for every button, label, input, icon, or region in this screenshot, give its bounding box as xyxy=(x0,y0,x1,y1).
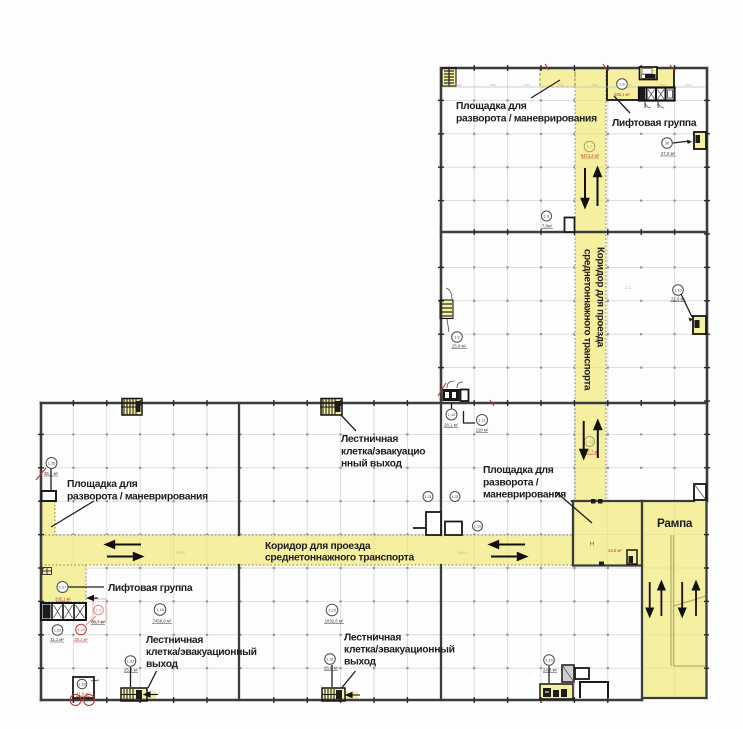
svg-text:1.15: 1.15 xyxy=(545,658,553,663)
svg-text:разворота / маневрирования: разворота / маневрирования xyxy=(67,491,208,502)
svg-text:1.10: 1.10 xyxy=(674,288,682,293)
svg-text:24,6 м²: 24,6 м² xyxy=(608,548,622,553)
svg-text:клетка/эвакуационный: клетка/эвакуационный xyxy=(344,645,455,656)
svg-text:25,8 м²: 25,8 м² xyxy=(124,668,139,673)
svg-text:41,5 м²: 41,5 м² xyxy=(76,692,90,697)
svg-text:1.9: 1.9 xyxy=(454,335,459,340)
svg-text:7456,6 м²: 7456,6 м² xyxy=(153,619,172,624)
svg-text:24,8 м²: 24,8 м² xyxy=(543,668,558,673)
svg-text:1.31: 1.31 xyxy=(451,494,459,499)
svg-text:1.7: 1.7 xyxy=(587,144,592,149)
svg-text:ДВ№1: ДВ№1 xyxy=(458,551,467,555)
svg-text:клетка/эвакуационный: клетка/эвакуационный xyxy=(146,647,257,658)
svg-text:нный выход: нный выход xyxy=(341,459,402,470)
svg-text:выход: выход xyxy=(146,659,179,670)
svg-text:1.26: 1.26 xyxy=(48,461,56,466)
svg-text:1.23: 1.23 xyxy=(328,608,336,613)
svg-text:Лифтовая группа: Лифтовая группа xyxy=(108,582,193,594)
svg-text:1.19: 1.19 xyxy=(474,524,482,529)
svg-text:3.1: 3.1 xyxy=(625,285,632,290)
svg-text:разворота /: разворота / xyxy=(483,477,539,488)
svg-text:118 м²: 118 м² xyxy=(476,428,489,433)
svg-text:клетка/эвакуацио: клетка/эвакуацио xyxy=(341,446,425,457)
svg-text:Площадка для: Площадка для xyxy=(456,101,527,112)
svg-text:1.3: 1.3 xyxy=(96,608,101,613)
svg-text:разворота / маневрирования: разворота / маневрирования xyxy=(456,113,597,124)
svg-text:Площадка для: Площадка для xyxy=(483,465,554,476)
svg-text:285,1 м²: 285,1 м² xyxy=(614,92,631,97)
svg-text:3б: 3б xyxy=(665,141,670,146)
svg-text:ДВ№1: ДВ№1 xyxy=(176,551,185,555)
svg-text:Лестничная: Лестничная xyxy=(344,633,401,644)
svg-text:1.8: 1.8 xyxy=(544,214,549,219)
svg-text:25,8 м²: 25,8 м² xyxy=(324,666,339,671)
svg-text:5471,2 м²: 5471,2 м² xyxy=(581,153,600,158)
svg-text:1.16: 1.16 xyxy=(156,607,164,612)
svg-text:11,1 м²: 11,1 м² xyxy=(50,637,64,642)
svg-text:Рампа: Рампа xyxy=(657,516,693,530)
svg-text:1.11: 1.11 xyxy=(478,418,485,423)
svg-text:1.29: 1.29 xyxy=(54,628,62,633)
svg-text:Лестничная: Лестничная xyxy=(341,434,398,445)
svg-text:25,9 м²: 25,9 м² xyxy=(452,344,467,349)
svg-text:7500: 7500 xyxy=(659,83,666,87)
svg-text:выход: выход xyxy=(344,657,377,668)
svg-text:18,1 м²: 18,1 м² xyxy=(74,637,88,642)
svg-text:1.27: 1.27 xyxy=(59,585,67,590)
svg-text:среднетоннажного транспорта: среднетоннажного транспорта xyxy=(265,553,414,564)
svg-text:88,7 м²: 88,7 м² xyxy=(91,620,106,625)
svg-text:7,8м²: 7,8м² xyxy=(542,224,553,229)
svg-text:1.32: 1.32 xyxy=(127,659,135,664)
svg-text:1.14: 1.14 xyxy=(586,439,594,444)
svg-text:Коридор для проезда: Коридор для проезда xyxy=(265,541,371,552)
svg-text:1.31: 1.31 xyxy=(326,657,334,662)
svg-text:7500: 7500 xyxy=(557,83,564,87)
svg-text:1.33: 1.33 xyxy=(78,682,86,687)
svg-text:7500: 7500 xyxy=(523,83,530,87)
svg-text:Лестничная: Лестничная xyxy=(146,635,203,646)
svg-text:1.6: 1.6 xyxy=(619,82,624,87)
svg-text:7500: 7500 xyxy=(685,83,692,87)
svg-text:среднетоннажного транспорта: среднетоннажного транспорта xyxy=(582,249,593,391)
svg-text:Лифтовая группа: Лифтовая группа xyxy=(612,117,697,129)
svg-text:маневрирования: маневрирования xyxy=(483,490,566,501)
svg-text:7500: 7500 xyxy=(591,83,598,87)
svg-text:Площадка для: Площадка для xyxy=(67,479,138,490)
svg-text:295,1 м²: 295,1 м² xyxy=(55,597,72,602)
svg-text:27,0 м²: 27,0 м² xyxy=(661,151,676,156)
svg-text:7500: 7500 xyxy=(489,83,496,87)
svg-text:Коридор для проезда: Коридор для проезда xyxy=(595,247,606,348)
svg-text:1832,6 м²: 1832,6 м² xyxy=(325,619,344,624)
svg-text:4.19: 4.19 xyxy=(77,627,85,632)
svg-text:1.12: 1.12 xyxy=(448,412,456,417)
svg-text:1.21: 1.21 xyxy=(424,494,432,499)
svg-text:28,1 м²: 28,1 м² xyxy=(444,423,459,428)
svg-text:7500: 7500 xyxy=(455,83,462,87)
svg-text:H: H xyxy=(590,542,594,548)
svg-text:7500: 7500 xyxy=(625,83,632,87)
